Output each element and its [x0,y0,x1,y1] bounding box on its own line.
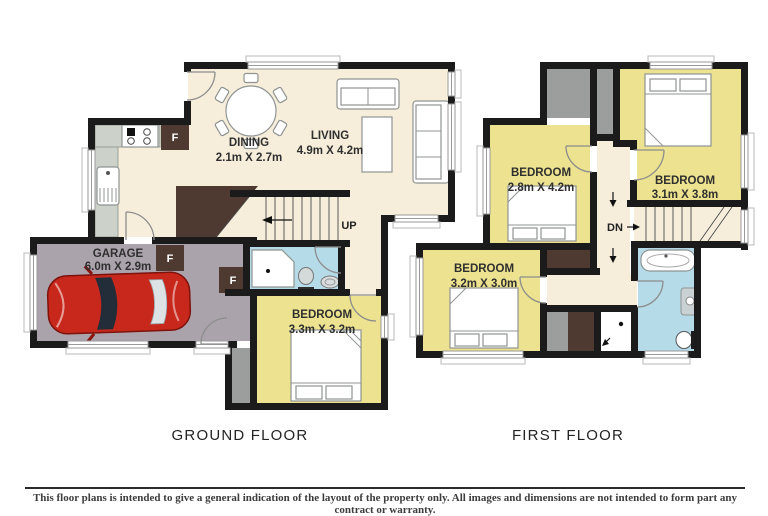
ff-bedroom-lower-label: BEDROOM [454,263,514,275]
bed [450,288,518,348]
ground-floor-plan: DINING 2.1m X 2.7m LIVING 4.9m X 4.2m GA… [24,56,461,410]
floor-plan-canvas: DINING 2.1m X 2.7m LIVING 4.9m X 4.2m GA… [0,0,768,512]
gf-bedroom-label: BEDROOM [292,309,352,321]
ff-bedroom-left-dims: 2.8m X 4.2m [508,182,574,194]
living-dims: 4.9m X 4.2m [297,145,363,157]
shower-room-floor [601,312,631,351]
garage-dims: 6.0m X 2.9m [85,261,151,273]
gf-bedroom-dims: 3.3m X 3.2m [289,324,355,336]
storage [568,312,597,351]
basin-icon [321,276,339,288]
wardrobe [547,69,590,118]
ff-bedroom-lower-dims: 3.2m X 3.0m [451,278,517,290]
appliance-label-1: F [172,132,179,144]
bathtub-icon [641,250,695,271]
dining-dims: 2.1m X 2.7m [216,152,282,164]
ff-bedroom-right-dims: 3.1m X 3.8m [652,189,718,201]
dining-label: DINING [229,137,269,149]
bed [291,330,361,401]
porch-floor [232,348,250,403]
dn-label: DN [607,222,623,234]
stove-icon [122,125,158,147]
garage-label: GARAGE [93,248,144,260]
coffee-table [362,117,392,172]
appliance-label-2: F [167,253,174,265]
shower [252,250,294,287]
bed [645,74,711,146]
up-label: UP [341,220,356,232]
side-sofa [413,101,449,183]
first-floor-title: FIRST FLOOR [512,427,624,444]
appliance-label-3: F [230,275,237,287]
storage [547,250,590,268]
ground-floor-title: GROUND FLOOR [172,427,309,444]
ff-bedroom-right-label: BEDROOM [655,175,715,187]
sofa [337,79,399,109]
living-label: LIVING [311,130,349,142]
wardrobe [597,69,613,134]
bed [508,186,576,241]
storage [547,312,568,351]
ff-bedroom-left-label: BEDROOM [511,167,571,179]
kitchen-sink-icon [97,167,119,205]
disclaimer-text: This floor plans is intended to give a g… [25,492,745,516]
disclaimer-divider [25,487,745,489]
first-floor-plan: BEDROOM 2.8m X 4.2m BEDROOM 3.1m X 3.8m … [410,56,754,364]
